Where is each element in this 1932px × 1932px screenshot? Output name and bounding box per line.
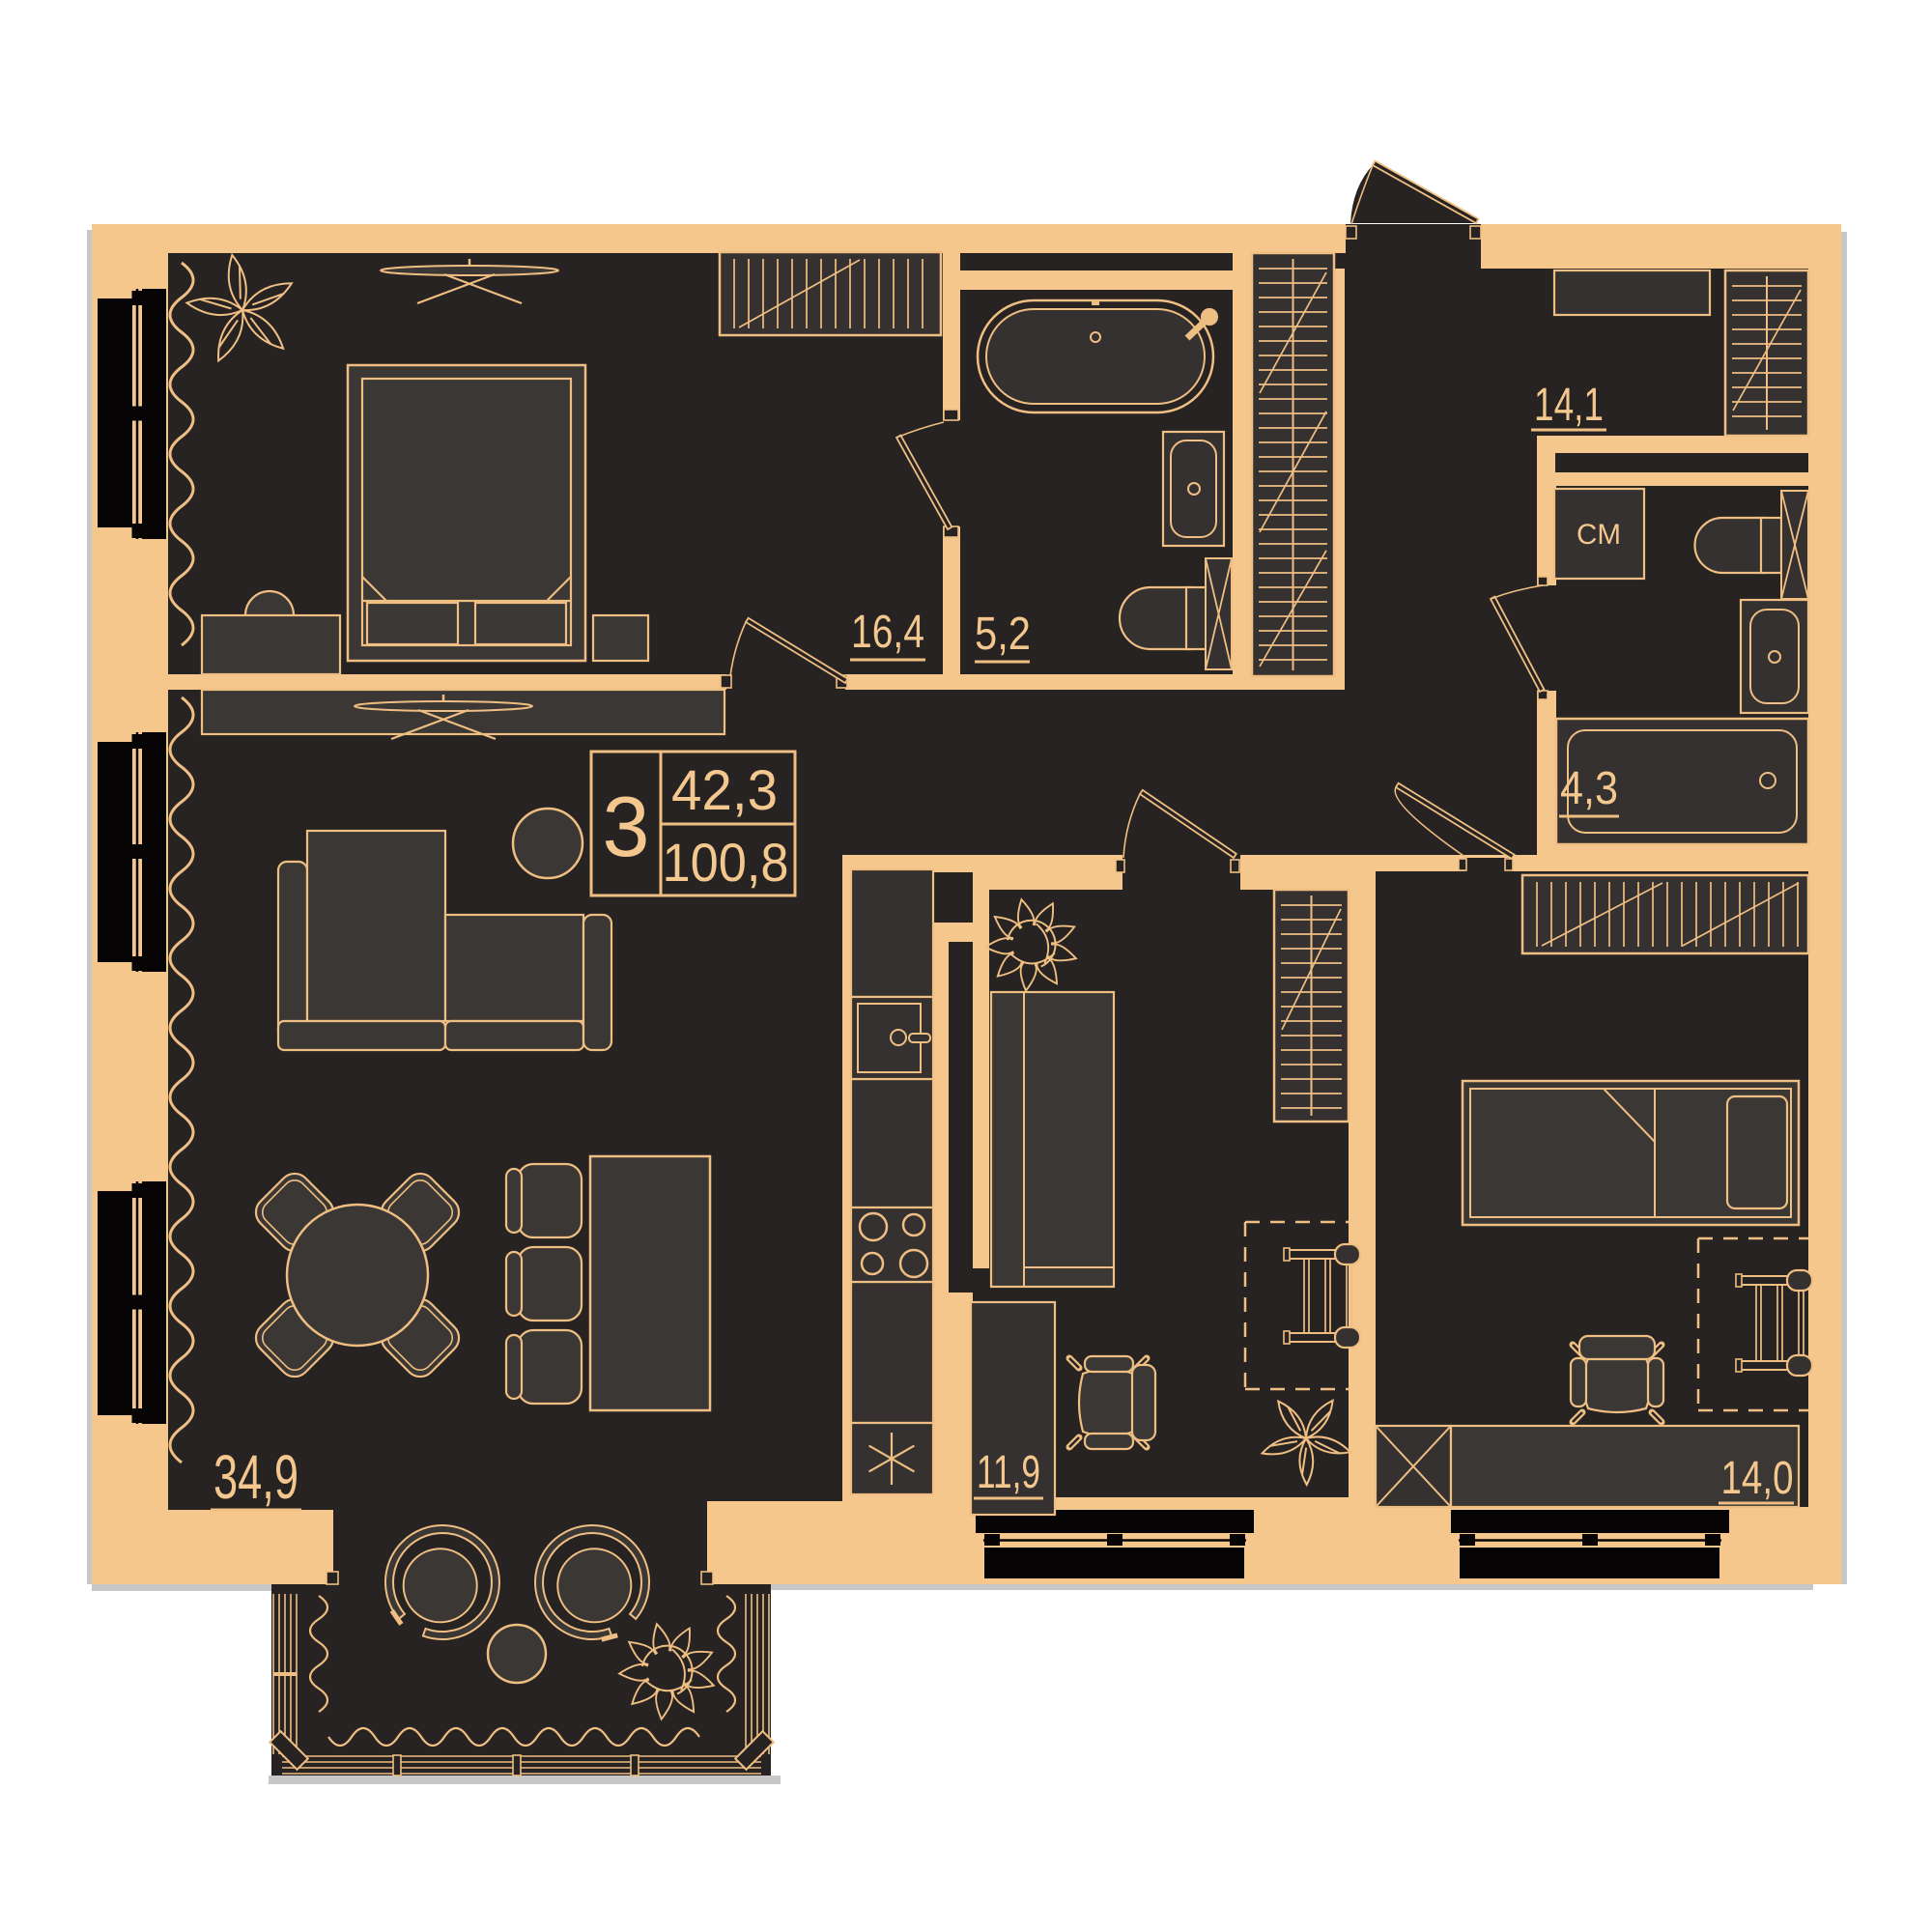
svg-text:4,3: 4,3 bbox=[1560, 763, 1618, 814]
svg-text:100,8: 100,8 bbox=[663, 832, 789, 893]
svg-text:16,4: 16,4 bbox=[851, 607, 924, 658]
svg-text:3: 3 bbox=[603, 779, 650, 874]
svg-text:14,1: 14,1 bbox=[1534, 380, 1604, 431]
svg-text:5,2: 5,2 bbox=[975, 609, 1031, 660]
svg-text:14,0: 14,0 bbox=[1721, 1453, 1794, 1504]
svg-text:42,3: 42,3 bbox=[671, 759, 778, 822]
svg-text:CM: CM bbox=[1577, 519, 1621, 551]
svg-text:34,9: 34,9 bbox=[213, 1442, 298, 1512]
svg-text:11,9: 11,9 bbox=[977, 1447, 1040, 1498]
